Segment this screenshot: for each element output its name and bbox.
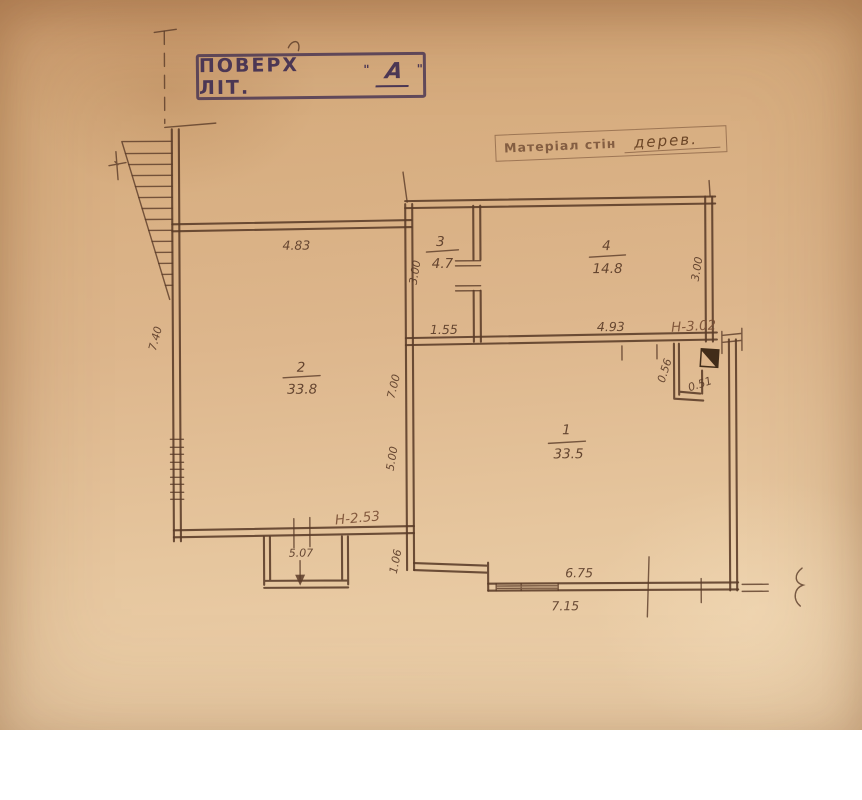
stamp-open-quote: ": [363, 62, 369, 76]
right-door-bracket: [722, 328, 742, 353]
staircase: [109, 141, 173, 299]
dim-chimney-width: 0.56: [655, 357, 675, 384]
room-4-number: 4: [602, 238, 611, 254]
stamp-close-quote: ": [417, 62, 423, 76]
wall-material-label: Матеріал стін: [504, 136, 617, 156]
dim-room3-height: 3.00: [407, 259, 424, 285]
floor-plan-drawing: 4.83 7.40 3.00 1.55 4.93 Н-3.02 3.00 7.0…: [0, 0, 862, 730]
room-1-label: 1 33.5: [548, 422, 585, 462]
room-2-area: 33.8: [287, 382, 317, 398]
wall-material-value: дерев.: [624, 129, 721, 154]
dim-mid-wall-upper: 7.00: [385, 373, 403, 400]
dim-ceiling-height-top: Н-3.02: [671, 317, 717, 336]
dim-left-wall-height: 7.40: [146, 325, 165, 352]
porch: [264, 536, 348, 587]
right-edge-ticks: [742, 584, 768, 591]
stamp-letter: А: [375, 59, 412, 87]
room-2-label: 2 33.8: [283, 360, 320, 398]
dim-mid-wall-lower: 5.00: [384, 445, 401, 471]
dim-bottom-total: 7.15: [551, 598, 579, 613]
room-1-number: 1: [562, 422, 571, 438]
dim-bottom-step: 1.06: [387, 548, 405, 575]
room-1-area: 33.5: [553, 446, 583, 462]
porch-door-jambs: [294, 518, 310, 548]
dim-porch-width: 5.07: [289, 547, 314, 560]
scanned-floorplan-page: 4.83 7.40 3.00 1.55 4.93 Н-3.02 3.00 7.0…: [0, 0, 862, 730]
room-3-area: 4.7: [432, 256, 454, 272]
dim-room4-width: 4.93: [597, 319, 625, 334]
bottom-dimension-ticks: [647, 557, 701, 617]
door-jambs-3-4: [455, 261, 480, 291]
axis-top-tick: [154, 29, 176, 32]
floor-stamp-box: ПОВЕРХ ЛІТ. " А ": [196, 52, 426, 100]
room-3-number: 3: [436, 234, 445, 250]
room-4-area: 14.8: [592, 261, 622, 277]
pencil-cross-mark: [109, 152, 126, 180]
walls: [165, 120, 804, 619]
pen-stroke-above-stamp: [288, 42, 299, 51]
dim-ceiling-height-left: Н-2.53: [334, 508, 380, 528]
dim-chimney-depth: 0.51: [686, 374, 713, 394]
handwritten-squiggle: [795, 568, 803, 606]
dim-room1-width: 6.75: [565, 565, 593, 580]
room-2-number: 2: [297, 360, 306, 376]
stamp-title: ПОВЕРХ ЛІТ.: [199, 54, 357, 100]
dim-room3-width: 1.55: [430, 322, 458, 337]
dim-room4-height: 3.00: [689, 256, 706, 282]
dim-room2-width: 4.83: [282, 238, 310, 253]
room-4-label: 4 14.8: [589, 238, 625, 277]
room-3-label: 3 4.7: [426, 234, 458, 272]
